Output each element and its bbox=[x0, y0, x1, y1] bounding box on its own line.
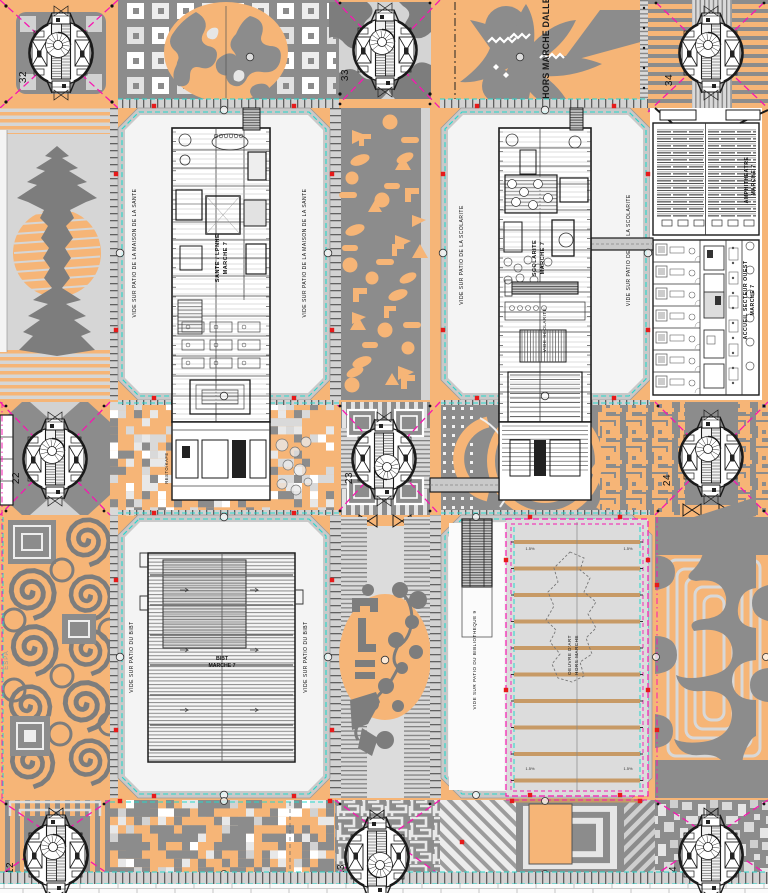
svg-text:VIDE SUR PATIO DU BIBT: VIDE SUR PATIO DU BIBT bbox=[303, 621, 309, 692]
svg-text:MARCHE 7: MARCHE 7 bbox=[750, 284, 756, 315]
svg-text:23: 23 bbox=[344, 472, 355, 484]
svg-text:VIDE SUR PATIO DU BIBLIOTHEQUE: VIDE SUR PATIO DU BIBLIOTHEQUE 9 bbox=[472, 610, 477, 709]
svg-text:1.5%: 1.5% bbox=[623, 546, 633, 551]
svg-text:BIBT: BIBT bbox=[216, 656, 229, 662]
svg-text:34: 34 bbox=[664, 74, 675, 86]
svg-text:33: 33 bbox=[340, 69, 351, 81]
svg-text:ACCUEIL SECTEUR OUEST: ACCUEIL SECTEUR OUEST bbox=[743, 260, 749, 339]
svg-text:AMPHITHEATRE: AMPHITHEATRE bbox=[744, 157, 750, 204]
svg-text:MARCHE 7: MARCHE 7 bbox=[540, 242, 546, 275]
svg-text:VIDE SUR PATIO DU BIBT: VIDE SUR PATIO DU BIBT bbox=[129, 621, 135, 692]
svg-text:1.5%: 1.5% bbox=[525, 546, 535, 551]
svg-text:1.5%: 1.5% bbox=[623, 766, 633, 771]
svg-text:VIDE SUR PATIO DE LA MAISON DE: VIDE SUR PATIO DE LA MAISON DE LA SANTE bbox=[302, 188, 308, 317]
svg-text:MARCHE 7: MARCHE 7 bbox=[223, 242, 229, 275]
svg-text:VIDE SUR PATIO DE LA MAISON DE: VIDE SUR PATIO DE LA MAISON DE LA SANTE bbox=[132, 188, 138, 317]
svg-text:LA SCOLARITE: LA SCOLARITE bbox=[626, 194, 632, 236]
svg-text:SCOLARITE: SCOLARITE bbox=[532, 240, 538, 276]
svg-text:HORS MARCHE: HORS MARCHE bbox=[574, 635, 579, 675]
svg-text:ESPA: ESPA bbox=[4, 650, 10, 670]
svg-text:HORS MARCHE DALLE: HORS MARCHE DALLE bbox=[541, 0, 551, 99]
svg-text:RESTO/KAFE: RESTO/KAFE bbox=[164, 452, 169, 483]
svg-text:1.5%: 1.5% bbox=[525, 766, 535, 771]
svg-text:OEUVRE D'ART: OEUVRE D'ART bbox=[567, 635, 572, 675]
svg-text:MARCHE 7: MARCHE 7 bbox=[751, 164, 757, 195]
svg-text:VIDE SCOLARITE: VIDE SCOLARITE bbox=[542, 308, 547, 352]
svg-text:VIDE SUR PATIO DE LA SCOLARITE: VIDE SUR PATIO DE LA SCOLARITE bbox=[459, 205, 465, 305]
svg-text:24: 24 bbox=[662, 474, 673, 486]
svg-text:32: 32 bbox=[18, 71, 29, 83]
svg-text:22: 22 bbox=[11, 472, 22, 484]
svg-text:VIDE SUR PATIO DE: VIDE SUR PATIO DE bbox=[626, 250, 632, 306]
svg-text:MARCHE 7: MARCHE 7 bbox=[208, 663, 235, 669]
svg-text:SANTE / LPNHE: SANTE / LPNHE bbox=[215, 234, 221, 282]
